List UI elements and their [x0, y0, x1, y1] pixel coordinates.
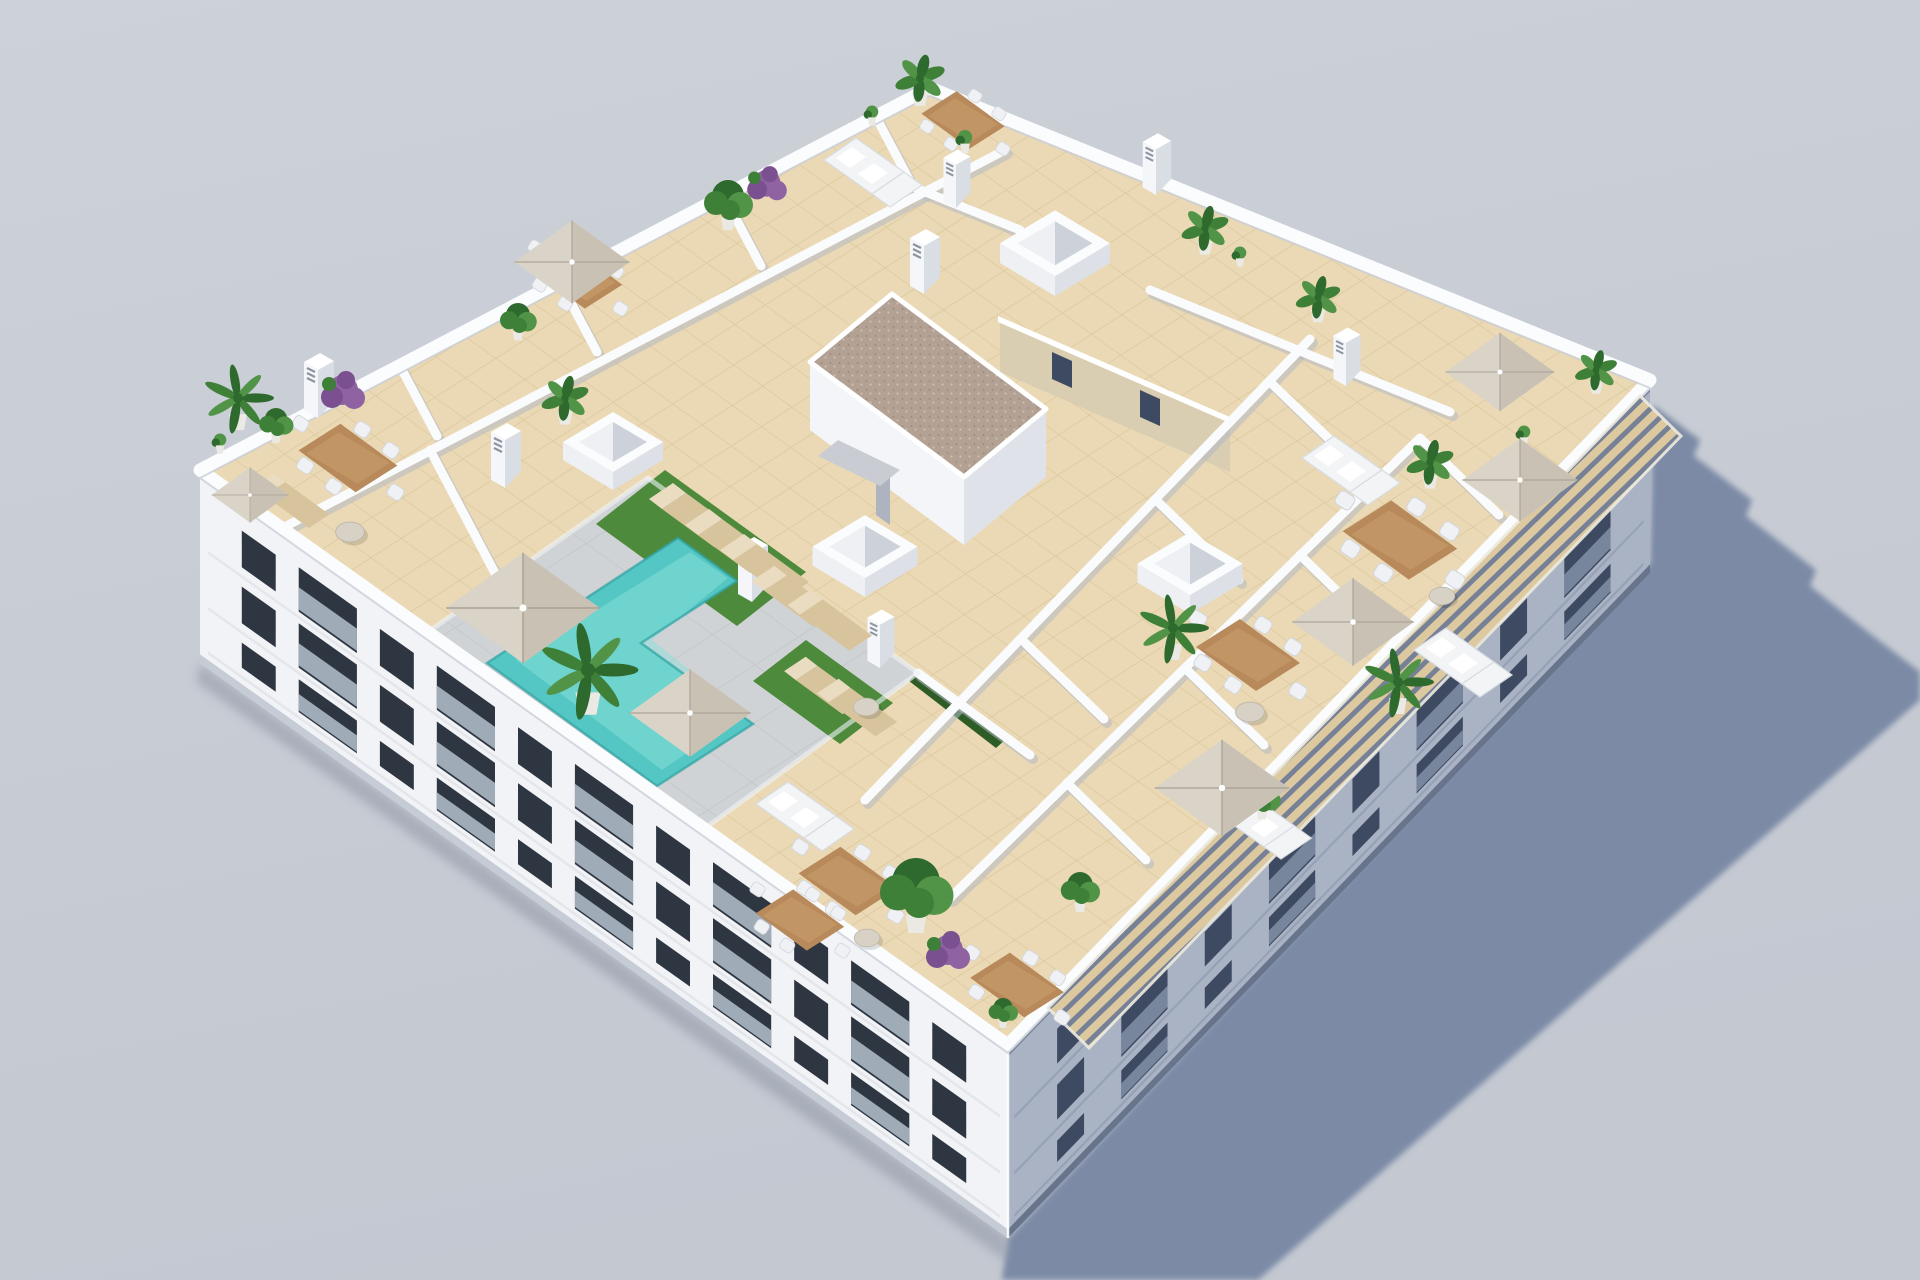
rooftop-render [0, 0, 1920, 1280]
render-stage [0, 0, 1920, 1280]
